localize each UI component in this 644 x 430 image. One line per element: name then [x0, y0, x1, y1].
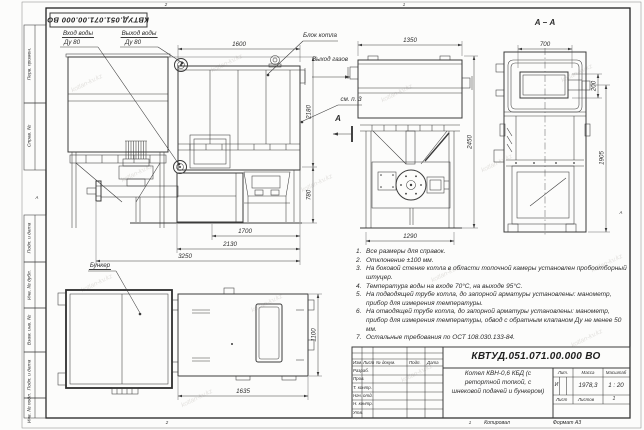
row-n-kontr: Н. контр. — [353, 401, 373, 406]
label-water-outlet: Выход воды — [121, 30, 158, 38]
note-item: 7.Остальные требования по ОСТ 108.030.13… — [356, 334, 628, 343]
sheets-label: Листов — [578, 397, 594, 402]
dim-side-height: 2450 — [467, 135, 474, 149]
zone-mark: 2 — [165, 2, 167, 7]
zone-mark: 1 — [469, 420, 471, 425]
lit-label: Лит. — [558, 370, 568, 375]
note-number: 1. — [356, 248, 366, 257]
scale-value: 1 : 20 — [608, 382, 623, 389]
label-water-outlet-dn: Ду 80 — [125, 39, 141, 46]
mass-value: 1978,3 — [579, 382, 598, 389]
row-prov: Пров. — [353, 376, 365, 381]
note-text: Температура воды на входе 70°С, на выход… — [366, 283, 628, 292]
rotated-doc-code: КВТУД.051.071.00.000 ВО — [47, 16, 149, 25]
note-item: 1.Все размеры для справок. — [356, 248, 628, 257]
dim-side-bottom: 1290 — [403, 233, 417, 240]
note-item: 6.На отводящей трубе котла, до запорной … — [356, 308, 628, 334]
col-data: Дата — [427, 360, 439, 365]
note-item: 2.Отклонение ±100 мм. — [356, 257, 628, 266]
margin-label-sprav-no: Справ. № — [28, 125, 33, 147]
label-water-inlet: Вход воды — [62, 30, 94, 38]
dim-front-height-2: 780 — [306, 190, 313, 200]
dim-front-bottom-3: 3250 — [178, 253, 192, 260]
note-number: 2. — [356, 257, 366, 266]
margin-label-inv-podl: Инв. № подл. — [28, 393, 33, 423]
drawing-sheet: kotlan-kv.kz kotlan-kv.kz kotlan-kv.kz k… — [0, 0, 644, 430]
copied-label: Копировал — [484, 420, 510, 426]
row-t-kontr: Т. контр. — [353, 385, 372, 390]
title-block-product-title: Котел КВН-0,6 КБД (с — [465, 370, 531, 377]
col-list: Лист — [363, 360, 374, 365]
dim-section-height-1: 200 — [591, 81, 598, 91]
note-item: 4.Температура воды на входе 70°С, на вых… — [356, 283, 628, 292]
margin-label-perv-primen: Перв. примен. — [28, 48, 33, 81]
title-block-product-title: шнековой подачей и бункером) — [452, 388, 545, 395]
zone-mark: 1 — [403, 2, 405, 7]
row-razrab: Разраб. — [353, 368, 369, 373]
section-view-title: А – А — [535, 18, 555, 27]
note-text: На боковой стенке котла в области топочн… — [366, 265, 628, 282]
dim-plan-bottom: 1635 — [236, 388, 250, 395]
side-view-drawing — [333, 41, 478, 245]
dim-section-height-2: 1905 — [599, 151, 606, 165]
dim-front-bottom-1: 1700 — [238, 228, 252, 235]
note-text: Остальные требования по ОСТ 108.030.133-… — [366, 334, 628, 343]
col-podp: Подп. — [409, 360, 421, 365]
fold-mark: А — [620, 210, 623, 215]
row-nach-otd: Нач. отд. — [353, 393, 373, 398]
front-view-drawing — [60, 41, 362, 265]
note-text: На отводящей трубе котла, до запорной ар… — [366, 308, 628, 334]
format-label: Формат А3 — [553, 420, 581, 426]
dim-plan-height: 1100 — [311, 328, 318, 341]
scale-label: Масштаб — [606, 370, 627, 375]
drawing-linework — [0, 0, 644, 430]
margin-label-podp-data-2: Подп. и дата — [28, 360, 33, 391]
title-block-product-title: ретортной топкой, с — [465, 379, 531, 386]
note-item: 3.На боковой стенке котла в области топо… — [356, 265, 628, 282]
margin-label-inv-dubl: Инв. № дубл. — [28, 270, 33, 300]
note-text: Отклонение ±100 мм. — [366, 257, 628, 266]
dim-front-bottom-2: 2130 — [223, 241, 237, 248]
title-block-doc-number: КВТУД.051.071.00.000 ВО — [471, 351, 600, 362]
note-text: Все размеры для справок. — [366, 248, 628, 257]
fold-mark: А — [36, 195, 39, 200]
note-number: 4. — [356, 283, 366, 292]
note-number: 3. — [356, 265, 366, 282]
sheets-value: 1 — [613, 396, 616, 402]
notes-list: 1.Все размеры для справок. 2.Отклонение … — [356, 248, 628, 343]
dim-front-top: 1600 — [232, 41, 246, 48]
col-izm: Изм. — [353, 360, 362, 365]
dim-section-top: 700 — [540, 41, 550, 48]
label-gas-outlet: Выход газов — [312, 56, 348, 63]
section-view-drawing — [494, 45, 610, 236]
sheet-label: Лист — [556, 397, 567, 402]
note-number: 7. — [356, 334, 366, 343]
dim-front-height-1: 2180 — [306, 105, 313, 119]
note-text: На подводящей трубе котла, до запорной а… — [366, 291, 628, 308]
row-utv: Утв. — [353, 410, 363, 415]
margin-label-vzam-inv: Взам. инв. № — [28, 315, 33, 345]
plan-view-drawing — [58, 271, 322, 400]
label-water-inlet-dn: Ду 80 — [64, 39, 80, 46]
note-number: 5. — [356, 291, 366, 308]
dim-side-top: 1350 — [403, 37, 417, 44]
label-see-note: см. п. 3 — [340, 96, 361, 103]
note-item: 5.На подводящей трубе котла, до запорной… — [356, 291, 628, 308]
zone-mark: 2 — [166, 420, 168, 425]
margin-label-podp-data-1: Подп. и дата — [28, 223, 33, 254]
mass-label: Масса — [582, 370, 595, 375]
label-bunker: Бункер — [89, 262, 111, 270]
label-boiler-block: Блок котла — [303, 32, 337, 39]
note-number: 6. — [356, 308, 366, 334]
sheet-frame — [22, 2, 641, 428]
section-arrow-letter: А — [335, 114, 341, 123]
col-docum: № докум. — [376, 360, 395, 365]
lit-value: И — [555, 382, 559, 388]
